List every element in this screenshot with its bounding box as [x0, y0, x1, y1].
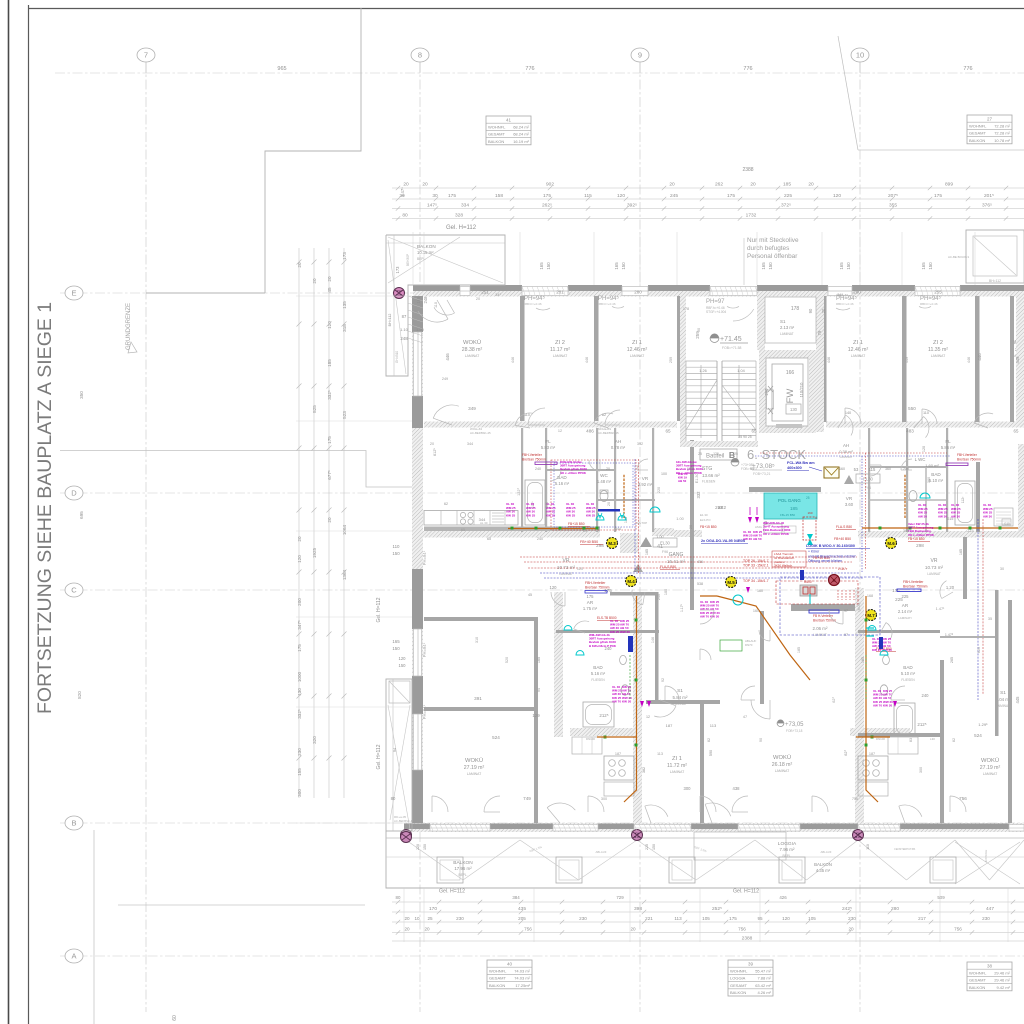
svg-text:62³: 62³	[844, 750, 848, 756]
svg-text:FBH-Verteiler: FBH-Verteiler	[957, 453, 978, 457]
svg-text:B400: B400	[804, 580, 812, 584]
svg-text:20: 20	[750, 182, 756, 188]
svg-text:100: 100	[664, 589, 668, 595]
svg-text:300: 300	[684, 786, 692, 791]
svg-text:17.25m²: 17.25m²	[515, 983, 530, 988]
svg-text:20: 20	[404, 916, 410, 921]
svg-text:140: 140	[845, 411, 851, 415]
svg-text:12: 12	[558, 429, 562, 433]
svg-text:durch befugtes: durch befugtes	[747, 245, 789, 252]
svg-text:344: 344	[615, 527, 621, 531]
svg-text:POL GANG: POL GANG	[778, 498, 801, 503]
svg-text:WW 20: WW 20	[620, 630, 630, 634]
svg-text:8: 8	[418, 51, 422, 60]
svg-text:80: 80	[391, 796, 396, 801]
svg-text:150: 150	[392, 646, 400, 651]
svg-text:KW 25: KW 25	[506, 513, 516, 517]
svg-text:1.00: 1.00	[676, 517, 683, 521]
svg-text:20: 20	[430, 442, 434, 446]
svg-text:1.04: 1.04	[737, 369, 744, 373]
svg-text:446: 446	[585, 357, 589, 363]
svg-text:AW 30: AW 30	[983, 514, 992, 518]
svg-text:4.35 m²: 4.35 m²	[816, 868, 831, 873]
svg-text:PH=94⁵: PH=94⁵	[524, 295, 546, 302]
svg-text:47: 47	[743, 715, 747, 719]
svg-text:PH=94⁵: PH=94⁵	[422, 704, 427, 719]
svg-text:39: 39	[748, 961, 754, 966]
svg-text:WOH+63: WOH+63	[836, 293, 848, 297]
svg-text:WOHNFL: WOHNFL	[969, 970, 987, 975]
svg-text:53: 53	[854, 467, 859, 472]
svg-text:GESAMT: GESAMT	[969, 131, 986, 136]
svg-text:B: B	[71, 819, 76, 828]
svg-text:129: 129	[532, 713, 540, 718]
svg-text:TOP 33 -15k/2.1: TOP 33 -15k/2.1	[743, 564, 769, 568]
svg-text:65: 65	[1014, 429, 1019, 434]
svg-text:62: 62	[444, 502, 448, 506]
svg-text:74.03 m²: 74.03 m²	[514, 968, 530, 973]
svg-text:Bre/San 750mm: Bre/San 750mm	[522, 458, 546, 462]
svg-text:265: 265	[950, 657, 954, 663]
svg-text:2.06 m²: 2.06 m²	[813, 626, 828, 631]
svg-text:445: 445	[1015, 696, 1020, 704]
svg-text:Bre/San 750mm: Bre/San 750mm	[903, 585, 928, 589]
svg-text:83: 83	[909, 738, 913, 742]
svg-text:G15: G15	[966, 529, 973, 533]
svg-text:230: 230	[456, 916, 464, 921]
svg-text:FL: FL	[945, 439, 951, 444]
svg-text:20: 20	[476, 297, 480, 301]
svg-text:KW 20: KW 20	[883, 703, 893, 707]
svg-text:+73,05: +73,05	[785, 722, 804, 728]
svg-text:110: 110	[866, 844, 870, 850]
svg-text:332: 332	[696, 491, 701, 499]
svg-text:10.15 m²: 10.15 m²	[417, 250, 434, 255]
svg-text:170: 170	[429, 906, 437, 912]
svg-text:94: 94	[393, 748, 397, 752]
svg-text:150: 150	[768, 262, 773, 270]
svg-text:LAMINAT: LAMINAT	[559, 572, 573, 576]
svg-text:446: 446	[511, 357, 515, 363]
svg-text:41: 41	[506, 117, 512, 122]
svg-text:5.16 m²: 5.16 m²	[591, 671, 606, 676]
svg-text:300: 300	[601, 797, 607, 801]
svg-text:Personal öffenbar: Personal öffenbar	[747, 253, 798, 260]
svg-text:220: 220	[657, 487, 661, 493]
svg-text:BH=112: BH=112	[989, 279, 1001, 283]
svg-text:259: 259	[669, 357, 673, 363]
svg-text:280: 280	[853, 290, 861, 295]
svg-text:776: 776	[525, 66, 534, 72]
svg-text:EL30: EL30	[863, 477, 873, 482]
svg-text:1064: 1064	[342, 524, 347, 535]
svg-text:175: 175	[727, 193, 735, 199]
svg-text:BK x +C8cm PPOK: BK x +C8cm PPOK	[560, 471, 587, 475]
svg-text:DN100: DN100	[586, 737, 595, 741]
svg-text:160: 160	[757, 589, 763, 593]
svg-text:ELS PO: ELS PO	[700, 518, 711, 522]
svg-text:BAD: BAD	[593, 665, 603, 670]
svg-text:122³: 122³	[517, 487, 521, 495]
svg-text:110: 110	[434, 302, 438, 308]
svg-text:90: 90	[697, 328, 701, 332]
svg-text:S1: S1	[677, 688, 683, 694]
svg-text:BALKON: BALKON	[814, 862, 832, 867]
svg-text:5.84 m²: 5.84 m²	[673, 695, 688, 700]
svg-text:FB+40 B50: FB+40 B50	[580, 540, 598, 544]
svg-text:1.75 m²: 1.75 m²	[583, 606, 598, 611]
svg-text:899: 899	[945, 182, 953, 188]
svg-text:PH=94⁵: PH=94⁵	[422, 642, 427, 657]
svg-text:82: 82	[952, 738, 956, 742]
svg-text:PH=94⁵: PH=94⁵	[920, 295, 942, 302]
svg-text:902: 902	[546, 182, 554, 188]
svg-text:LAMINAT: LAMINAT	[780, 332, 794, 336]
svg-text:KW 25: KW 25	[526, 513, 536, 517]
svg-text:UK x +C8cm PPOK: UK x +C8cm PPOK	[763, 532, 790, 536]
svg-text:ASIG: ASIG	[755, 525, 763, 529]
svg-text:524: 524	[974, 733, 982, 738]
svg-text:825: 825	[312, 405, 317, 413]
svg-text:446: 446	[977, 353, 982, 361]
svg-text:17.96 m²: 17.96 m²	[454, 866, 472, 871]
svg-text:6. STOCK: 6. STOCK	[747, 447, 806, 462]
svg-text:165: 165	[959, 549, 963, 555]
svg-text:FLA-S B50: FLA-S B50	[660, 565, 676, 569]
svg-text:KW: KW	[856, 832, 861, 836]
svg-text:97: 97	[844, 609, 848, 613]
svg-text:5.10 m²: 5.10 m²	[901, 671, 916, 676]
svg-text:320: 320	[312, 736, 317, 744]
svg-text:115: 115	[869, 467, 876, 472]
svg-text:524: 524	[492, 735, 500, 740]
svg-text:20: 20	[689, 525, 693, 529]
svg-text:AR: AR	[587, 600, 594, 605]
svg-text:446: 446	[967, 357, 971, 363]
svg-text:173: 173	[342, 252, 347, 260]
svg-text:LAMINAT: LAMINAT	[851, 354, 865, 358]
svg-text:VR: VR	[846, 496, 853, 501]
svg-text:150: 150	[546, 262, 551, 270]
svg-text:776: 776	[743, 66, 752, 72]
svg-text:12: 12	[646, 715, 650, 719]
svg-text:10.73 m²: 10.73 m²	[925, 565, 944, 570]
svg-text:S1: S1	[780, 319, 786, 324]
svg-text:248: 248	[423, 296, 428, 304]
svg-text:LAMINAT¹: LAMINAT¹	[898, 616, 912, 620]
svg-text:965: 965	[277, 66, 286, 72]
svg-text:221: 221	[645, 916, 653, 921]
svg-text:230: 230	[297, 748, 302, 756]
svg-text:KW: KW	[635, 832, 640, 836]
svg-text:187: 187	[869, 752, 875, 756]
svg-text:34¹: 34¹	[495, 293, 501, 297]
svg-text:150: 150	[928, 262, 933, 270]
svg-text:590: 590	[709, 750, 713, 756]
svg-text:449: 449	[1015, 356, 1020, 364]
svg-text:5.10 m²: 5.10 m²	[929, 478, 944, 483]
svg-text:2x OGA-DO-VA-95 04E0B: 2x OGA-DO-VA-95 04E0B	[701, 539, 745, 543]
svg-text:110: 110	[393, 544, 401, 549]
svg-text:1.17⁵: 1.17⁵	[680, 603, 684, 612]
svg-text:WOKÜ: WOKÜ	[463, 339, 481, 346]
svg-text:16.19 m²: 16.19 m²	[513, 139, 529, 144]
svg-text:426: 426	[779, 895, 787, 900]
svg-text:1.10: 1.10	[400, 327, 409, 332]
svg-text:65: 65	[583, 529, 587, 533]
svg-text:BH=112: BH=112	[388, 314, 392, 327]
svg-text:262: 262	[715, 182, 723, 188]
svg-text:20: 20	[327, 517, 332, 523]
svg-text:20: 20	[404, 927, 410, 932]
svg-text:M.7: M.7	[867, 613, 875, 618]
svg-text:729: 729	[616, 895, 624, 900]
svg-text:LAMINAT: LAMINAT	[927, 572, 941, 576]
svg-text:10.73 m²: 10.73 m²	[557, 565, 576, 570]
svg-text:185: 185	[797, 647, 801, 653]
svg-text:220: 220	[645, 844, 649, 850]
svg-text:BALKON: BALKON	[488, 139, 504, 144]
svg-text:80: 80	[402, 213, 408, 219]
svg-text:LAMINAT: LAMINAT	[465, 354, 479, 358]
svg-text:UK x +C8cm PPOK: UK x +C8cm PPOK	[908, 533, 935, 537]
svg-text:AW 30: AW 30	[743, 537, 752, 541]
svg-text:25: 25	[427, 916, 433, 921]
svg-text:AB 50: AB 50	[678, 479, 687, 483]
svg-text:WOKÜ: WOKÜ	[981, 757, 999, 764]
svg-text:252⁵: 252⁵	[712, 906, 722, 912]
svg-text:7.96 m²: 7.96 m²	[780, 847, 795, 852]
svg-text:509: 509	[937, 895, 945, 900]
svg-text:240: 240	[535, 467, 541, 471]
svg-text:249: 249	[442, 377, 448, 381]
svg-text:Gel. H=112: Gel. H=112	[733, 889, 759, 895]
svg-text:328: 328	[455, 213, 463, 219]
svg-text:240: 240	[657, 594, 661, 600]
svg-text:756: 756	[954, 927, 962, 932]
svg-text:438: 438	[733, 786, 741, 791]
svg-text:150: 150	[423, 844, 427, 850]
svg-text:376⁵: 376⁵	[982, 203, 992, 209]
svg-text:TOP 34 -15k/1.7: TOP 34 -15k/1.7	[743, 579, 769, 583]
svg-text:Gel. H=112: Gel. H=112	[376, 744, 382, 769]
svg-text:230: 230	[982, 916, 990, 921]
svg-text:120: 120	[833, 193, 841, 199]
svg-text:13.66 m²: 13.66 m²	[702, 473, 720, 478]
svg-text:Öffnung vernet blieben: Öffnung vernet blieben	[808, 559, 842, 563]
svg-text:523: 523	[342, 411, 347, 419]
svg-text:38: 38	[987, 963, 993, 968]
svg-text:2 HA.T: 2 HA.T	[838, 567, 848, 571]
svg-text:3K90 Wallsch.: 3K90 Wallsch.	[774, 564, 793, 568]
svg-text:GESAMT: GESAMT	[489, 976, 506, 981]
svg-text:135: 135	[342, 301, 347, 309]
svg-text:300: 300	[919, 767, 923, 773]
svg-text:26.18 m²: 26.18 m²	[772, 762, 793, 768]
svg-text:120: 120	[617, 193, 625, 199]
svg-text:BALKON: BALKON	[489, 983, 505, 988]
svg-text:FBH-Verteiler: FBH-Verteiler	[585, 581, 606, 585]
svg-text:35: 35	[988, 617, 992, 621]
svg-text:9.42 m²: 9.42 m²	[996, 985, 1010, 990]
svg-text:90: 90	[808, 308, 813, 313]
svg-text:PH=94⁵: PH=94⁵	[598, 295, 620, 302]
svg-text:M.05: M.05	[855, 835, 861, 839]
svg-text:PH=94⁵: PH=94⁵	[422, 550, 427, 565]
svg-text:1.47⁵: 1.47⁵	[400, 187, 405, 197]
svg-text:10: 10	[856, 51, 864, 60]
svg-text:STGF=+4.004: STGF=+4.004	[706, 310, 726, 314]
svg-text:M.4: M.4	[627, 579, 635, 584]
svg-text:756: 756	[738, 927, 746, 932]
svg-text:2.13 m²: 2.13 m²	[780, 325, 795, 330]
svg-text:10: 10	[414, 916, 420, 921]
svg-text:165: 165	[839, 262, 844, 270]
svg-text:248: 248	[400, 336, 408, 341]
svg-text:212⁵: 212⁵	[599, 713, 608, 718]
svg-text:LAMINAT: LAMINAT	[467, 772, 481, 776]
svg-text:1.00: 1.00	[657, 535, 664, 539]
svg-text:7: 7	[144, 51, 148, 60]
svg-text:120: 120	[577, 567, 583, 571]
svg-text:20: 20	[669, 182, 675, 188]
svg-text:251: 251	[481, 290, 489, 295]
svg-text:100: 100	[661, 472, 667, 476]
svg-text:RBF.h=+0.46: RBF.h=+0.46	[524, 302, 542, 306]
svg-text:B KW+C8cm P POK: B KW+C8cm P POK	[589, 644, 617, 648]
svg-text:FB+15 B50: FB+15 B50	[700, 525, 717, 529]
svg-text:187: 187	[615, 752, 621, 756]
svg-text:115: 115	[584, 193, 592, 199]
svg-text:FCL-Wä Bw am: FCL-Wä Bw am	[787, 461, 815, 465]
svg-text:29.46 m²: 29.46 m²	[994, 978, 1010, 983]
svg-text:65: 65	[461, 528, 465, 532]
svg-text:1.60 m²: 1.60 m²	[925, 463, 939, 468]
svg-text:FB+15 B50: FB+15 B50	[908, 537, 925, 541]
svg-text:113: 113	[657, 752, 663, 756]
svg-text:AC-BE BOUX r1: AC-BE BOUX r1	[948, 255, 970, 259]
svg-text:L30: L30	[930, 737, 935, 741]
svg-text:63.42 m²: 63.42 m²	[755, 983, 771, 988]
svg-text:20: 20	[424, 927, 430, 932]
svg-text:AC-BEFBSK-45: AC-BEFBSK-45	[470, 431, 491, 435]
svg-text:+71.45: +71.45	[720, 336, 742, 343]
svg-text:165: 165	[539, 262, 544, 270]
svg-text:FLA-S B50: FLA-S B50	[836, 525, 852, 529]
svg-text:332⁵: 332⁵	[327, 390, 332, 400]
svg-text:185: 185	[783, 182, 791, 188]
svg-text:175: 175	[934, 193, 942, 199]
svg-text:RBF.h=+0.46: RBF.h=+0.46	[598, 302, 616, 306]
svg-text:384: 384	[512, 895, 520, 900]
svg-text:45: 45	[528, 593, 532, 597]
svg-text:94: 94	[537, 688, 541, 692]
svg-text:M.6: M.6	[887, 541, 895, 546]
svg-text:212⁵: 212⁵	[917, 722, 926, 727]
svg-text:FLIESEN: FLIESEN	[591, 678, 605, 682]
svg-text:LAMINAT: LAMINAT	[553, 354, 567, 358]
svg-text:RBF.h=+0.46: RBF.h=+0.46	[836, 302, 854, 306]
svg-text:Gel. H=112: Gel. H=112	[439, 889, 465, 895]
svg-text:185: 185	[790, 506, 798, 511]
svg-text:155: 155	[297, 768, 302, 776]
svg-text:391: 391	[474, 696, 482, 701]
svg-text:130: 130	[297, 688, 302, 696]
svg-text:BALKON: BALKON	[969, 985, 985, 990]
svg-text:9: 9	[638, 51, 642, 60]
svg-text:230: 230	[848, 916, 856, 921]
svg-text:5.83 m²: 5.83 m²	[541, 445, 556, 450]
svg-text:FLIESEN: FLIESEN	[702, 480, 716, 484]
svg-text:166: 166	[786, 370, 795, 376]
svg-text:3.60: 3.60	[845, 502, 854, 507]
svg-text:1.90: 1.90	[416, 327, 425, 332]
svg-text:27.19 m²: 27.19 m²	[980, 765, 1001, 771]
svg-text:446: 446	[445, 353, 450, 361]
svg-text:BEPL.: BEPL.	[458, 873, 467, 877]
svg-text:217: 217	[918, 916, 926, 921]
svg-text:27.19 m²: 27.19 m²	[464, 765, 485, 771]
svg-text:BALKON: BALKON	[730, 990, 746, 995]
svg-text:TOP 26 -15k/1.7: TOP 26 -15k/1.7	[743, 559, 769, 563]
svg-text:165: 165	[921, 262, 926, 270]
svg-text:1364: 1364	[342, 569, 347, 580]
svg-text:820: 820	[77, 691, 82, 699]
svg-text:160: 160	[839, 467, 845, 471]
svg-text:113: 113	[674, 916, 682, 921]
svg-text:65: 65	[665, 429, 671, 434]
svg-text:12.46 m²: 12.46 m²	[848, 347, 869, 353]
svg-text:E1.3C: E1.3C	[695, 472, 699, 483]
svg-text:280: 280	[891, 906, 899, 912]
svg-text:und mit Blauschracheta ndstrie: und mit Blauschracheta ndstrief	[808, 555, 856, 559]
svg-text:BEPL.: BEPL.	[782, 854, 791, 858]
svg-text:FW: FW	[785, 389, 796, 404]
svg-text:200: 200	[297, 598, 302, 606]
svg-text:GESAMT: GESAMT	[969, 978, 986, 983]
svg-text:255: 255	[934, 290, 942, 295]
svg-text:BAD: BAD	[931, 472, 941, 477]
svg-text:PH=97: PH=97	[706, 299, 725, 305]
svg-text:62³: 62³	[832, 697, 836, 703]
svg-text:5.16 m²: 5.16 m²	[555, 481, 570, 486]
svg-text:120: 120	[297, 555, 302, 563]
svg-text:201⁵: 201⁵	[984, 193, 994, 199]
svg-text:BAD: BAD	[903, 665, 913, 670]
svg-text:Gel. H=112: Gel. H=112	[376, 597, 382, 622]
svg-text:240: 240	[545, 502, 549, 508]
svg-text:WOHNFL: WOHNFL	[488, 124, 506, 129]
svg-text:332⁵: 332⁵	[297, 709, 302, 719]
svg-text:220: 220	[416, 844, 420, 850]
svg-text:BEPL.: BEPL.	[417, 257, 426, 261]
svg-text:FBH-Verteiler: FBH-Verteiler	[903, 580, 924, 584]
svg-text:392⁵: 392⁵	[627, 203, 637, 209]
svg-text:BAD: BAD	[557, 475, 567, 480]
svg-text:110/210: 110/210	[799, 382, 804, 397]
svg-text:ZI 2: ZI 2	[555, 340, 565, 346]
svg-text:BEH30P: BEH30P	[406, 254, 410, 266]
svg-text:20: 20	[312, 278, 317, 284]
svg-text:KONSOLE: KONSOLE	[984, 849, 988, 862]
svg-text:45: 45	[327, 287, 332, 293]
svg-text:175: 175	[327, 436, 332, 444]
svg-text:168: 168	[867, 594, 873, 598]
svg-text:360: 360	[885, 467, 891, 471]
svg-text:120: 120	[922, 446, 926, 452]
svg-text:5.86 m²: 5.86 m²	[941, 445, 956, 450]
svg-text:65: 65	[487, 537, 491, 541]
